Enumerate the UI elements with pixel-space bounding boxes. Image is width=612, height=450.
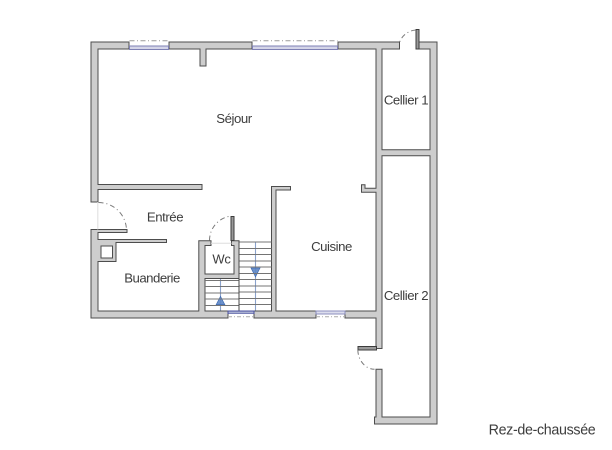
svg-text:Entrée: Entrée: [147, 210, 183, 225]
svg-text:Cellier 2: Cellier 2: [384, 288, 428, 303]
svg-text:Séjour: Séjour: [216, 111, 252, 126]
svg-text:Cellier 1: Cellier 1: [384, 93, 428, 108]
svg-text:Rez-de-chaussée: Rez-de-chaussée: [489, 423, 596, 439]
svg-text:Wc: Wc: [212, 252, 231, 267]
svg-text:Cuisine: Cuisine: [311, 239, 352, 254]
svg-text:Buanderie: Buanderie: [124, 271, 180, 286]
